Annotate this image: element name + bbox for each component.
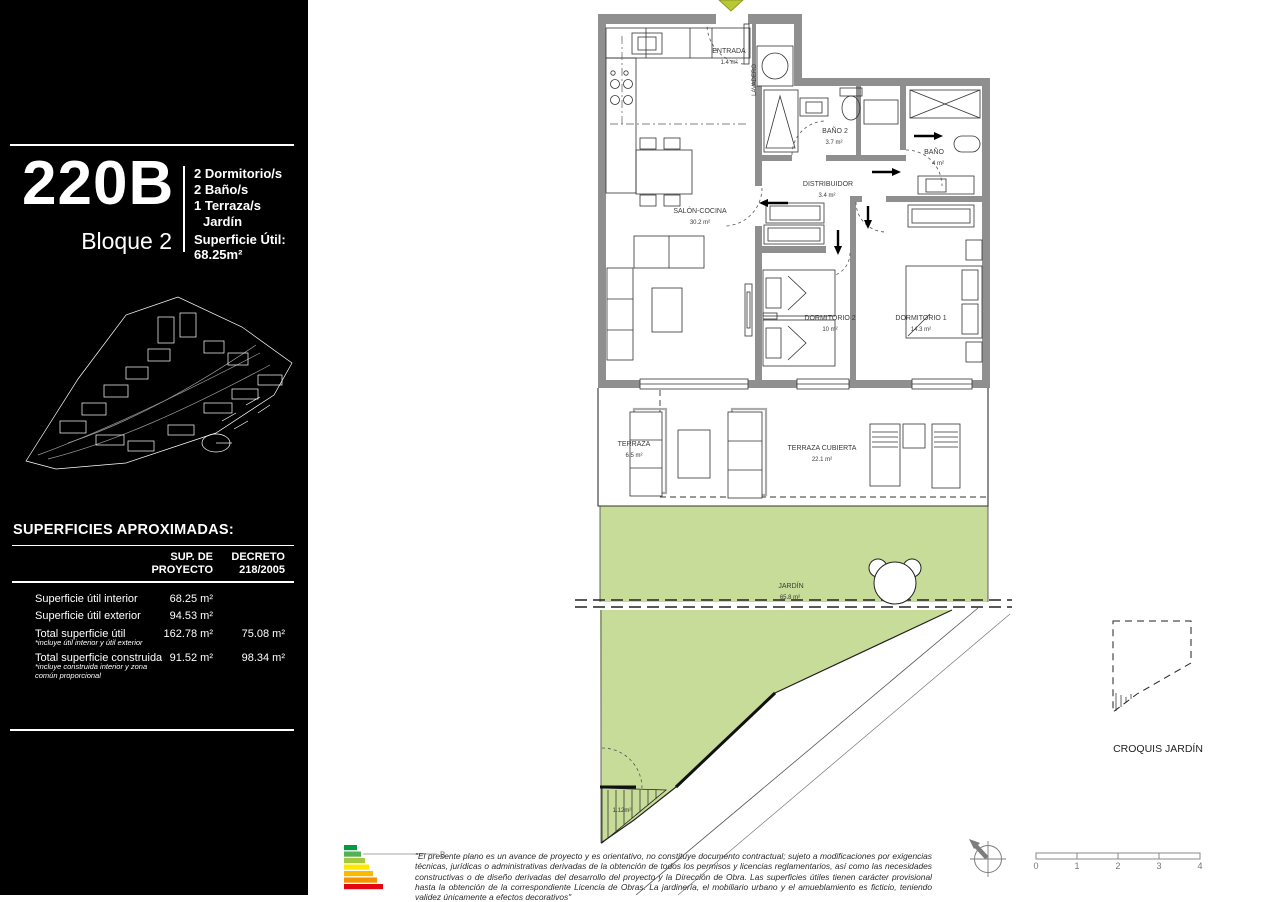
scale-tick: 0: [1033, 861, 1038, 871]
room-label-terraza-cubierta: TERRAZA CUBIERTA: [788, 445, 857, 452]
room-area-dormitorio2: 10 m²: [822, 327, 837, 333]
terrace-furniture: [630, 409, 960, 498]
room-label-jardin: JARDÍN: [778, 581, 803, 590]
room-area-salon: 30.2 m²: [690, 220, 710, 226]
scale-bar: 0 1 2 3 4: [1033, 853, 1202, 871]
room-label-dormitorio2: DORMITORIO 2: [804, 315, 855, 322]
room-area-entrada: 1.4 m²: [720, 60, 737, 66]
room-area-bano: 4 m²: [932, 161, 944, 167]
garden-area: 1.12m² JARDÍN 65.8 m²: [575, 506, 1012, 895]
room-label-entrada: ENTRADA: [712, 48, 746, 55]
legal-disclaimer: "El presente plano es un avance de proye…: [415, 851, 932, 902]
terrace-area: TERRAZA 6.5 m² TERRAZA CUBIERTA 22.1 m²: [598, 388, 988, 506]
bathroom2-fixtures: [764, 88, 862, 155]
garden-patch-area-label: 1.12m²: [613, 808, 632, 814]
salon-door-arc: [724, 188, 762, 226]
scale-tick: 1: [1074, 861, 1079, 871]
room-area-terraza: 6.5 m²: [625, 453, 642, 459]
scale-tick: 2: [1115, 861, 1120, 871]
room-label-terraza: TERRAZA: [618, 441, 651, 448]
room-label-distribuidor: DISTRIBUIDOR: [803, 181, 853, 188]
room-area-bano2: 3.7 m²: [825, 140, 842, 146]
room-area-jardin: 65.8 m²: [780, 595, 800, 601]
room-label-bano2: BAÑO 2: [822, 126, 848, 135]
bedroom1-furniture: [856, 202, 982, 362]
room-area-terraza-cubierta: 22.1 m²: [812, 457, 832, 463]
croquis-jardin: CROQUIS JARDÍN: [1113, 621, 1203, 755]
room-area-distribuidor: 3.4 m²: [818, 193, 835, 199]
croquis-jardin-label: CROQUIS JARDÍN: [1113, 742, 1203, 755]
room-label-bano: BAÑO: [924, 147, 944, 156]
entrance-arrow-icon: [719, 0, 743, 11]
room-area-dormitorio1: 14.3 m²: [911, 327, 931, 333]
room-label-dormitorio1: DORMITORIO 1: [895, 315, 946, 322]
room-label-lavadero: LAVADERO: [752, 64, 758, 96]
closet: [864, 100, 898, 124]
bathroom-fixtures: [906, 90, 980, 194]
floor-plan: 1.12m² JARDÍN 65.8 m² TERRAZA 6.5 m²: [0, 0, 1269, 895]
windows: [640, 379, 972, 389]
scale-tick: 3: [1156, 861, 1161, 871]
scale-tick: 4: [1197, 861, 1202, 871]
room-label-salon: SALÓN-COCINA: [673, 206, 727, 215]
compass-icon: [969, 839, 1006, 877]
living-room-furniture: [607, 138, 752, 360]
